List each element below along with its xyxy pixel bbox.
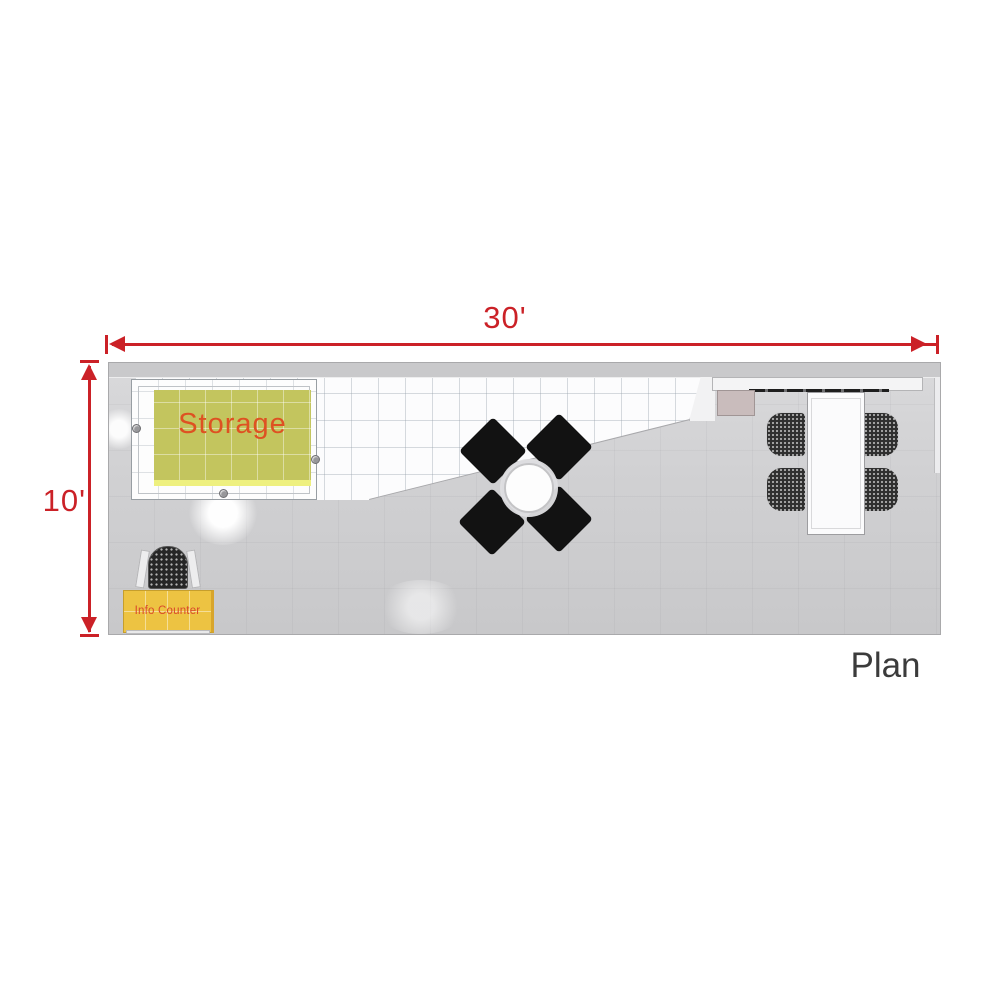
info-chair-armrest [186,550,201,589]
back-cabinet [717,390,755,416]
width-dimension-line [112,343,936,346]
info-counter-base [126,630,210,634]
depth-dimension-line [88,366,91,632]
wall-knob-icon [219,489,228,498]
arrowhead-right-icon [911,336,927,352]
storage-shelf-strip [154,480,311,486]
info-counter-chair [148,546,188,589]
width-dimension-label: 30' [445,300,565,336]
width-dimension-endbar-right [936,335,939,354]
info-counter-label: Info Counter [124,605,211,617]
conference-table-top [811,398,861,529]
wall-knob-icon [132,424,141,433]
storage-room: Storage [131,379,317,500]
back-wall [109,363,941,378]
light-glow [376,580,466,634]
width-dimension-endbar-left [105,335,108,354]
arrowhead-left-icon [109,336,125,352]
round-table [504,463,554,513]
right-wall-panel [934,378,941,473]
plan-title: Plan [828,646,943,686]
wall-knob-icon [311,455,320,464]
conference-table [807,392,865,535]
info-counter: Info Counter [123,590,214,633]
arrowhead-down-icon [81,617,97,633]
booth-outline: Storage Info Counter [108,362,941,635]
conference-chair [859,467,899,512]
depth-dimension-endbar-bottom [80,634,99,637]
storage-label: Storage [154,408,311,441]
conference-chair [766,412,806,457]
arrowhead-up-icon [81,364,97,380]
floor-plan: 30' 10' Storage [0,0,1000,1000]
conference-chair [859,412,899,457]
depth-dimension-endbar-top [80,360,99,363]
depth-dimension-label: 10' [24,483,86,519]
conference-chair [766,467,806,512]
